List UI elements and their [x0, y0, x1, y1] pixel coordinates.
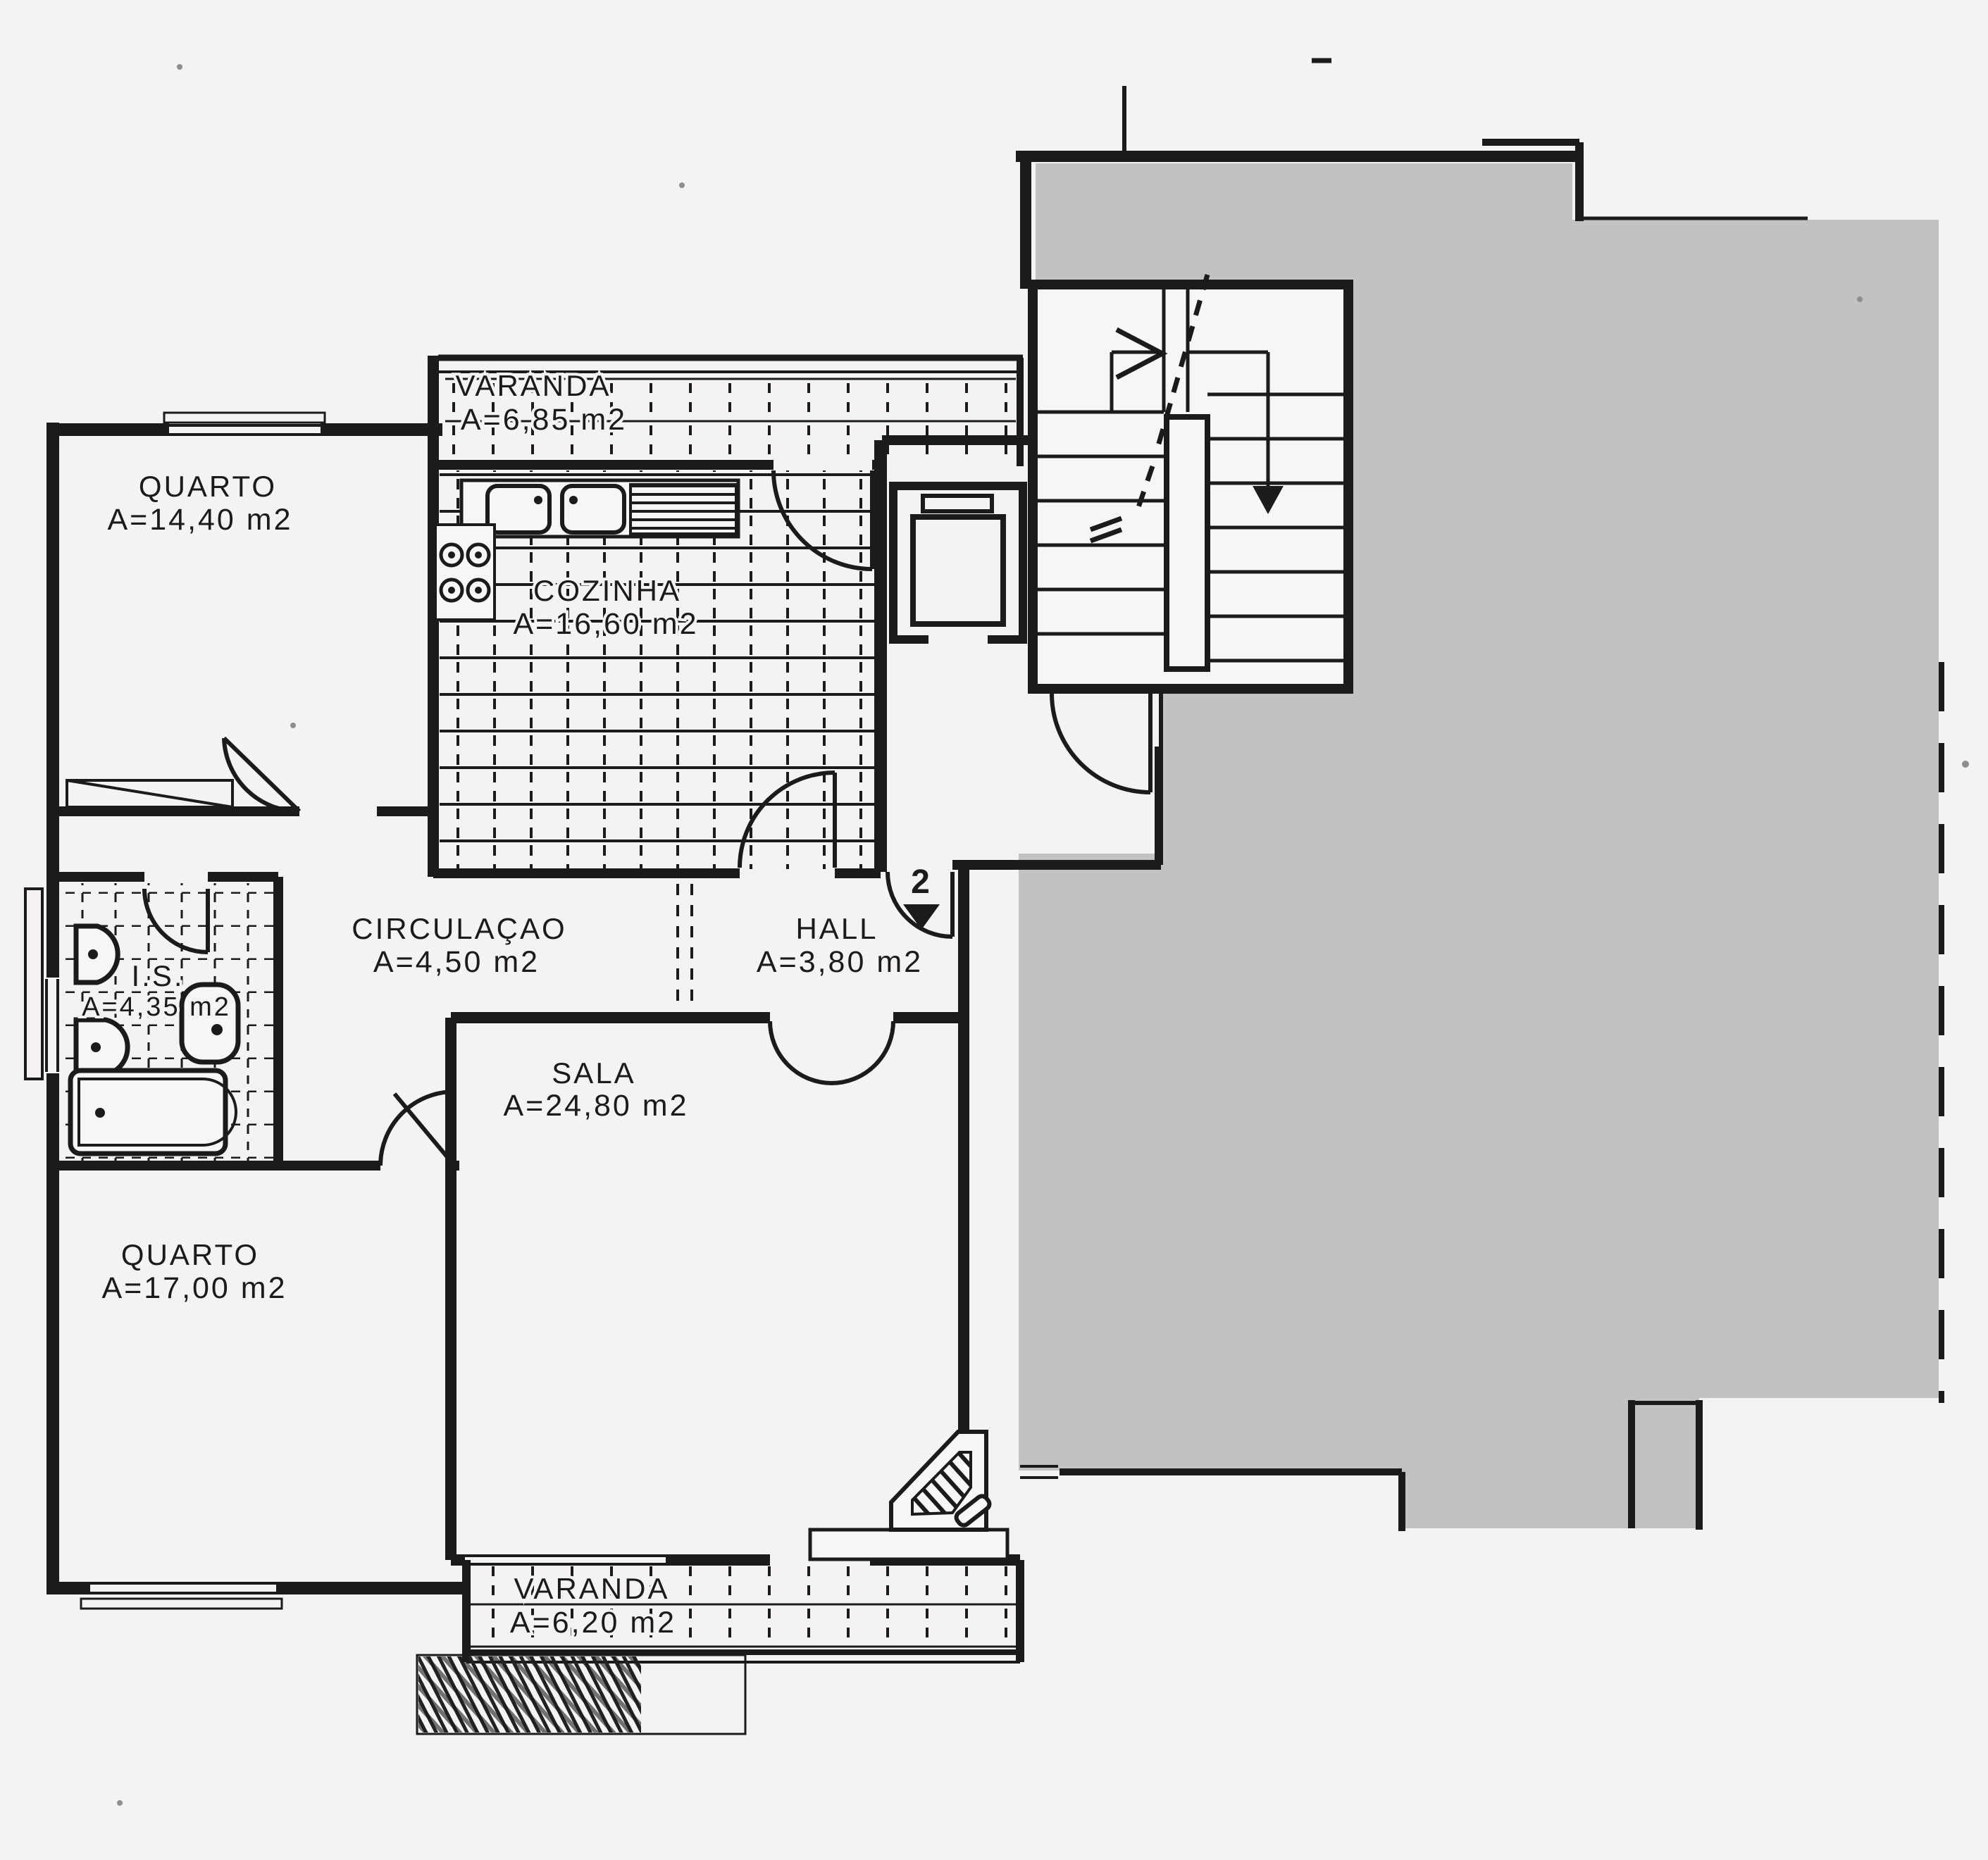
door-quarto-top [224, 738, 299, 811]
room-label-varanda-top: VARANDA A=6,85 m2 [456, 369, 628, 437]
svg-text:VARANDA: VARANDA [514, 1572, 670, 1605]
svg-text:COZINHA: COZINHA [533, 574, 681, 607]
svg-text:HALL: HALL [795, 912, 878, 945]
room-label-sala: SALA A=24,80 m2 [503, 1056, 688, 1123]
double-door-sala [770, 1021, 893, 1083]
stove-icon [435, 525, 495, 620]
elevator-counterweight [923, 496, 992, 511]
kitchen-sink-icon [562, 486, 624, 532]
svg-text:A=6,20 m2: A=6,20 m2 [510, 1606, 676, 1640]
svg-text:QUARTO: QUARTO [121, 1238, 259, 1271]
room-label-quarto-bottom: QUARTO A=17,00 m2 [101, 1238, 287, 1305]
svg-text:A=16,60 m2: A=16,60 m2 [513, 607, 698, 641]
svg-text:CIRCULAÇAO: CIRCULAÇAO [352, 912, 566, 945]
room-label-varanda-bottom: VARANDA A=6,20 m2 [510, 1572, 676, 1640]
planter-hatch [417, 1655, 745, 1734]
room-label-cozinha: COZINHA A=16,60 m2 [513, 574, 698, 641]
svg-text:A=6,85 m2: A=6,85 m2 [461, 403, 627, 437]
kitchen-sink-icon [487, 486, 549, 532]
svg-text:A=17,00 m2: A=17,00 m2 [101, 1271, 287, 1305]
svg-text:A=4,35 m2: A=4,35 m2 [82, 992, 231, 1022]
stair-newel [1167, 417, 1207, 669]
window-quarto-bottom [90, 1583, 276, 1593]
svg-text:A=3,80 m2: A=3,80 m2 [757, 945, 923, 979]
cased-opening [678, 884, 692, 1006]
fireplace-icon [810, 1432, 1007, 1559]
unit-number: 2 [911, 863, 932, 901]
room-label-quarto-top: QUARTO A=14,40 m2 [107, 470, 292, 537]
door-quarto-bottom [380, 1092, 454, 1166]
bidet-icon [76, 1020, 128, 1075]
window-sill [25, 889, 42, 1079]
svg-text:VARANDA: VARANDA [456, 369, 611, 402]
scanned-floor-plan-page: 2 VARANDA A=6,85 m2 QUARTO A=14,40 m2 [0, 0, 1988, 1860]
svg-text:SALA: SALA [552, 1056, 635, 1090]
elevator-car [913, 517, 1003, 624]
stair-door-arc [1052, 694, 1150, 792]
bathtub-icon [70, 1071, 225, 1154]
svg-text:QUARTO: QUARTO [139, 470, 277, 503]
svg-text:A=4,50 m2: A=4,50 m2 [373, 945, 540, 979]
kitchen-drainer [630, 485, 736, 534]
svg-text:A=14,40 m2: A=14,40 m2 [107, 503, 292, 537]
room-label-circulacao: CIRCULAÇAO A=4,50 m2 [352, 912, 566, 979]
floor-plan-svg: 2 VARANDA A=6,85 m2 QUARTO A=14,40 m2 [0, 0, 1988, 1860]
svg-text:A=24,80 m2: A=24,80 m2 [503, 1089, 688, 1123]
wardrobe [67, 780, 232, 807]
elevator [882, 440, 1030, 645]
svg-text:I.S.: I.S. [131, 959, 184, 992]
room-label-hall: HALL A=3,80 m2 [757, 912, 923, 979]
window-quarto-top [169, 425, 321, 435]
window-sala [465, 1556, 666, 1564]
